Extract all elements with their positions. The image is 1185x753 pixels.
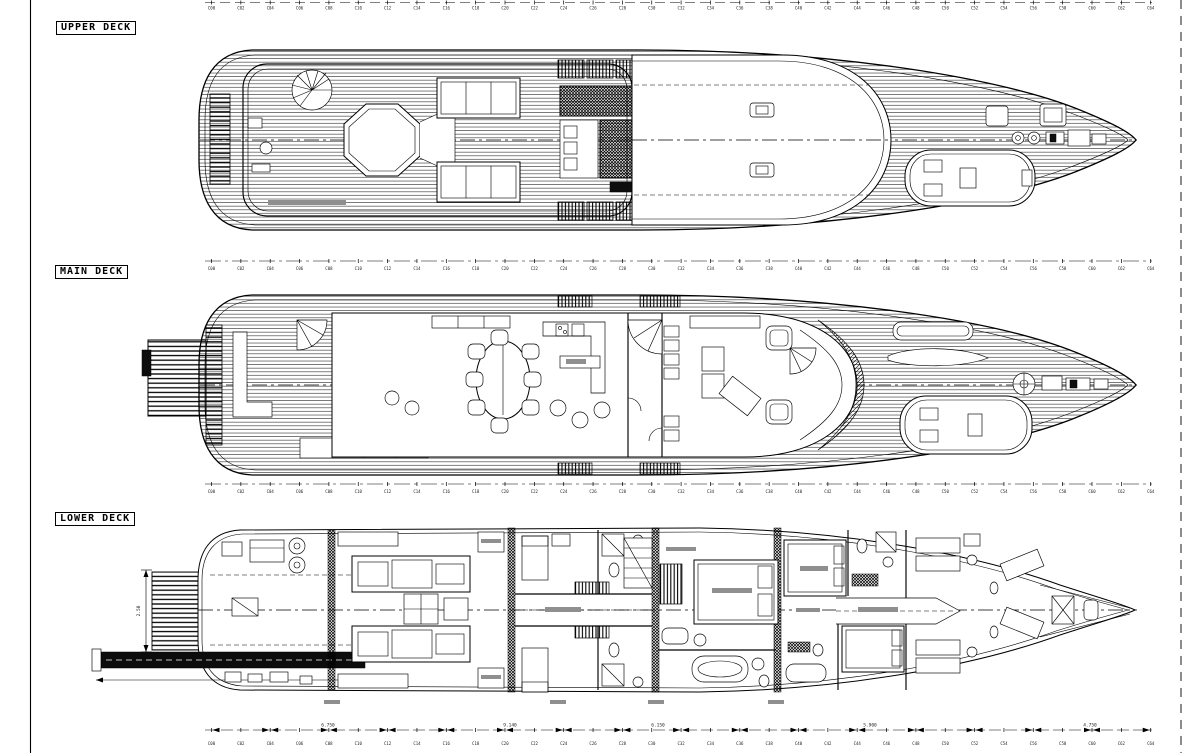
svg-text:C62: C62 xyxy=(1118,489,1126,494)
svg-text:C26: C26 xyxy=(589,741,597,746)
svg-text:C04: C04 xyxy=(267,489,275,494)
main-swim-platform xyxy=(142,340,206,416)
svg-text:C44: C44 xyxy=(854,489,862,494)
svg-text:C44: C44 xyxy=(854,266,862,271)
svg-text:C04: C04 xyxy=(267,6,275,11)
svg-text:C50: C50 xyxy=(942,6,950,11)
svg-text:C30: C30 xyxy=(648,266,656,271)
svg-text:C52: C52 xyxy=(971,266,979,271)
svg-text:C30: C30 xyxy=(648,489,656,494)
svg-text:C58: C58 xyxy=(1059,266,1067,271)
svg-text:C52: C52 xyxy=(971,741,979,746)
svg-text:C30: C30 xyxy=(648,6,656,11)
svg-text:C58: C58 xyxy=(1059,6,1067,11)
svg-text:C22: C22 xyxy=(531,489,539,494)
svg-text:C08: C08 xyxy=(325,489,333,494)
main-deck-plan xyxy=(142,295,1137,475)
svg-text:C34: C34 xyxy=(707,6,715,11)
svg-text:C00: C00 xyxy=(208,741,216,746)
svg-text:C24: C24 xyxy=(560,741,568,746)
svg-text:C40: C40 xyxy=(795,741,803,746)
svg-text:C00: C00 xyxy=(208,266,216,271)
svg-text:C44: C44 xyxy=(854,741,862,746)
svg-text:C46: C46 xyxy=(883,6,891,11)
svg-text:C06: C06 xyxy=(296,266,304,271)
svg-text:C24: C24 xyxy=(560,489,568,494)
svg-text:C64: C64 xyxy=(1147,6,1155,11)
lower-swim-platform xyxy=(141,570,200,652)
svg-text:6.150: 6.150 xyxy=(651,723,665,729)
svg-text:C56: C56 xyxy=(1030,266,1038,271)
svg-text:C60: C60 xyxy=(1088,6,1096,11)
svg-text:C34: C34 xyxy=(707,266,715,271)
svg-text:C18: C18 xyxy=(472,489,480,494)
svg-text:C04: C04 xyxy=(267,266,275,271)
svg-text:C40: C40 xyxy=(795,489,803,494)
svg-text:C58: C58 xyxy=(1059,741,1067,746)
svg-text:C32: C32 xyxy=(677,266,685,271)
svg-text:C62: C62 xyxy=(1118,266,1126,271)
svg-text:C00: C00 xyxy=(208,6,216,11)
svg-text:C32: C32 xyxy=(677,6,685,11)
svg-text:C22: C22 xyxy=(531,266,539,271)
svg-text:C10: C10 xyxy=(355,741,363,746)
svg-text:C22: C22 xyxy=(531,6,539,11)
svg-text:C14: C14 xyxy=(413,266,421,271)
svg-text:C26: C26 xyxy=(589,266,597,271)
svg-text:C02: C02 xyxy=(237,489,245,494)
svg-text:C32: C32 xyxy=(677,741,685,746)
svg-text:C50: C50 xyxy=(942,266,950,271)
svg-text:C38: C38 xyxy=(766,266,774,271)
svg-text:C42: C42 xyxy=(824,266,832,271)
svg-text:C30: C30 xyxy=(648,741,656,746)
svg-text:C14: C14 xyxy=(413,6,421,11)
frame-tick-smudges xyxy=(324,700,784,704)
svg-text:C08: C08 xyxy=(325,6,333,11)
svg-text:C34: C34 xyxy=(707,741,715,746)
svg-text:C26: C26 xyxy=(589,489,597,494)
svg-text:C38: C38 xyxy=(766,6,774,11)
svg-text:C48: C48 xyxy=(912,741,920,746)
svg-text:C38: C38 xyxy=(766,489,774,494)
svg-text:C48: C48 xyxy=(912,6,920,11)
svg-text:C42: C42 xyxy=(824,489,832,494)
svg-text:C34: C34 xyxy=(707,489,715,494)
svg-text:C24: C24 xyxy=(560,6,568,11)
svg-text:C28: C28 xyxy=(619,266,627,271)
platform-dimension-label: 2.50 xyxy=(136,605,142,616)
svg-text:C18: C18 xyxy=(472,266,480,271)
svg-text:C02: C02 xyxy=(237,741,245,746)
svg-text:C46: C46 xyxy=(883,266,891,271)
svg-text:C28: C28 xyxy=(619,489,627,494)
svg-text:C60: C60 xyxy=(1088,741,1096,746)
svg-text:C12: C12 xyxy=(384,741,392,746)
svg-text:C02: C02 xyxy=(237,266,245,271)
svg-text:C28: C28 xyxy=(619,6,627,11)
svg-text:C20: C20 xyxy=(501,489,509,494)
svg-text:C06: C06 xyxy=(296,741,304,746)
svg-text:C54: C54 xyxy=(1000,266,1008,271)
svg-text:C10: C10 xyxy=(355,266,363,271)
svg-text:C64: C64 xyxy=(1147,741,1155,746)
svg-text:C12: C12 xyxy=(384,266,392,271)
svg-text:C42: C42 xyxy=(824,741,832,746)
svg-text:C14: C14 xyxy=(413,741,421,746)
svg-text:C02: C02 xyxy=(237,6,245,11)
svg-text:C16: C16 xyxy=(443,741,451,746)
svg-text:C12: C12 xyxy=(384,6,392,11)
svg-text:C54: C54 xyxy=(1000,741,1008,746)
svg-text:C62: C62 xyxy=(1118,6,1126,11)
svg-text:C36: C36 xyxy=(736,266,744,271)
svg-text:C38: C38 xyxy=(766,741,774,746)
svg-text:C14: C14 xyxy=(413,489,421,494)
svg-text:C18: C18 xyxy=(472,6,480,11)
lower-corridor-arrow xyxy=(836,598,960,624)
svg-text:C40: C40 xyxy=(795,6,803,11)
svg-text:C64: C64 xyxy=(1147,489,1155,494)
svg-text:C20: C20 xyxy=(501,741,509,746)
svg-text:C56: C56 xyxy=(1030,6,1038,11)
svg-text:C46: C46 xyxy=(883,489,891,494)
svg-text:C32: C32 xyxy=(677,489,685,494)
svg-text:6.750: 6.750 xyxy=(321,723,335,729)
svg-text:C54: C54 xyxy=(1000,6,1008,11)
svg-text:C36: C36 xyxy=(736,6,744,11)
svg-text:C24: C24 xyxy=(560,266,568,271)
svg-text:C06: C06 xyxy=(296,6,304,11)
upper-tender-boat xyxy=(905,150,1035,206)
svg-text:C20: C20 xyxy=(501,6,509,11)
wheelhouse-top xyxy=(632,55,891,225)
svg-text:C28: C28 xyxy=(619,741,627,746)
svg-text:C06: C06 xyxy=(296,489,304,494)
svg-text:C20: C20 xyxy=(501,266,509,271)
svg-text:C36: C36 xyxy=(736,489,744,494)
svg-text:C36: C36 xyxy=(736,741,744,746)
svg-text:C22: C22 xyxy=(531,741,539,746)
svg-text:C26: C26 xyxy=(589,6,597,11)
svg-text:C42: C42 xyxy=(824,6,832,11)
svg-text:C12: C12 xyxy=(384,489,392,494)
svg-text:C50: C50 xyxy=(942,741,950,746)
lower-deck-plan: 2.50 xyxy=(92,528,1137,704)
svg-text:C16: C16 xyxy=(443,489,451,494)
svg-text:C48: C48 xyxy=(912,266,920,271)
svg-text:C52: C52 xyxy=(971,6,979,11)
svg-text:C52: C52 xyxy=(971,489,979,494)
svg-text:C60: C60 xyxy=(1088,489,1096,494)
svg-text:9.140: 9.140 xyxy=(503,723,517,729)
svg-text:C60: C60 xyxy=(1088,266,1096,271)
svg-text:5.900: 5.900 xyxy=(863,723,877,729)
svg-text:C08: C08 xyxy=(325,741,333,746)
svg-text:C18: C18 xyxy=(472,741,480,746)
svg-text:C08: C08 xyxy=(325,266,333,271)
svg-text:C10: C10 xyxy=(355,489,363,494)
svg-text:C40: C40 xyxy=(795,266,803,271)
svg-text:C62: C62 xyxy=(1118,741,1126,746)
svg-text:C48: C48 xyxy=(912,489,920,494)
svg-text:C00: C00 xyxy=(208,489,216,494)
svg-text:C10: C10 xyxy=(355,6,363,11)
svg-text:C44: C44 xyxy=(854,6,862,11)
svg-text:C16: C16 xyxy=(443,266,451,271)
svg-text:C46: C46 xyxy=(883,741,891,746)
upper-deck-plan xyxy=(199,50,1137,230)
general-arrangement-drawing: 2.50 xyxy=(0,0,1185,753)
drawing-sheet: UPPER DECK MAIN DECK LOWER DECK xyxy=(0,0,1185,753)
svg-text:C04: C04 xyxy=(267,741,275,746)
svg-text:C16: C16 xyxy=(443,6,451,11)
spiral-staircase xyxy=(292,70,332,110)
svg-text:4.750: 4.750 xyxy=(1083,723,1097,729)
svg-text:C50: C50 xyxy=(942,489,950,494)
svg-text:C54: C54 xyxy=(1000,489,1008,494)
dimension-labels: 6.7509.1406.1505.9004.750 xyxy=(321,723,1097,729)
svg-text:C64: C64 xyxy=(1147,266,1155,271)
svg-text:C56: C56 xyxy=(1030,489,1038,494)
svg-text:C58: C58 xyxy=(1059,489,1067,494)
svg-text:C56: C56 xyxy=(1030,741,1038,746)
